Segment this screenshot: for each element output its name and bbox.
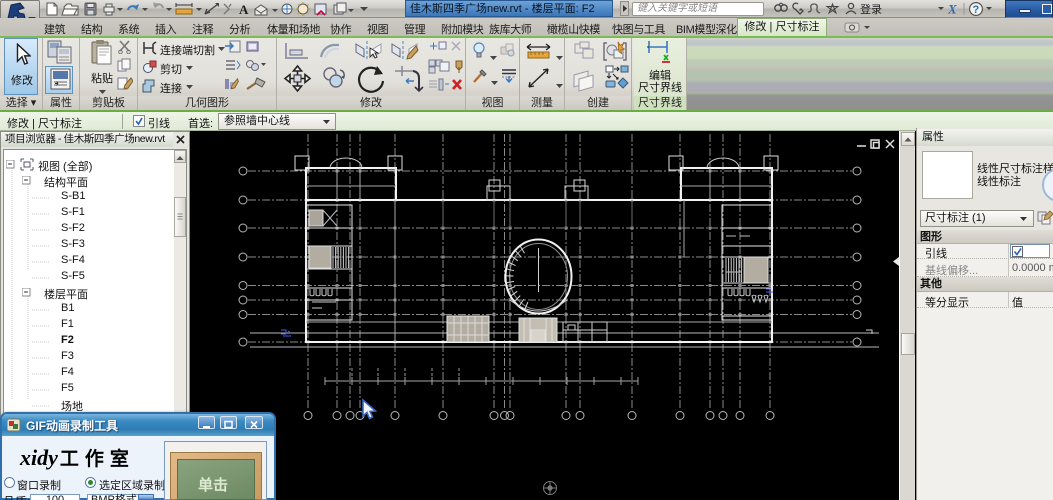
svg-text:登录: 登录 xyxy=(860,2,882,16)
svg-text:X: X xyxy=(947,2,957,17)
svg-text:A: A xyxy=(239,2,249,17)
svg-text:?: ? xyxy=(973,4,980,16)
